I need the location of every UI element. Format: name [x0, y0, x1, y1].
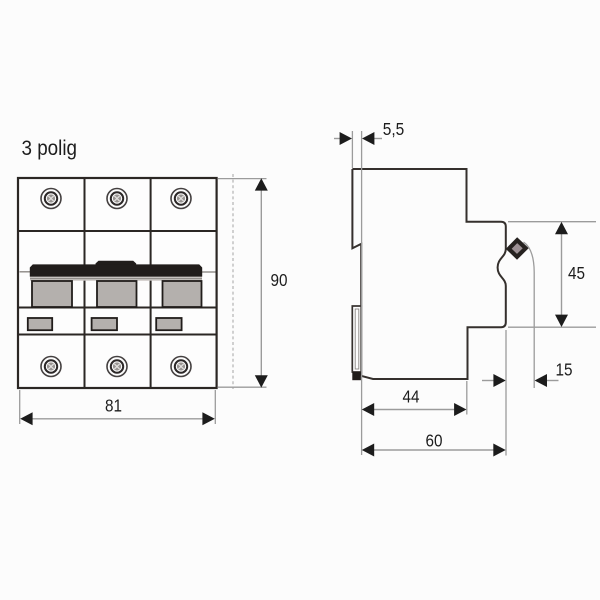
svg-text:5,5: 5,5 [383, 119, 405, 139]
svg-text:81: 81 [105, 396, 122, 416]
svg-text:60: 60 [426, 430, 443, 450]
svg-text:45: 45 [568, 263, 585, 283]
svg-text:15: 15 [556, 359, 573, 379]
svg-text:90: 90 [271, 270, 288, 290]
svg-text:44: 44 [403, 386, 420, 406]
svg-text:3 polig: 3 polig [22, 137, 78, 160]
